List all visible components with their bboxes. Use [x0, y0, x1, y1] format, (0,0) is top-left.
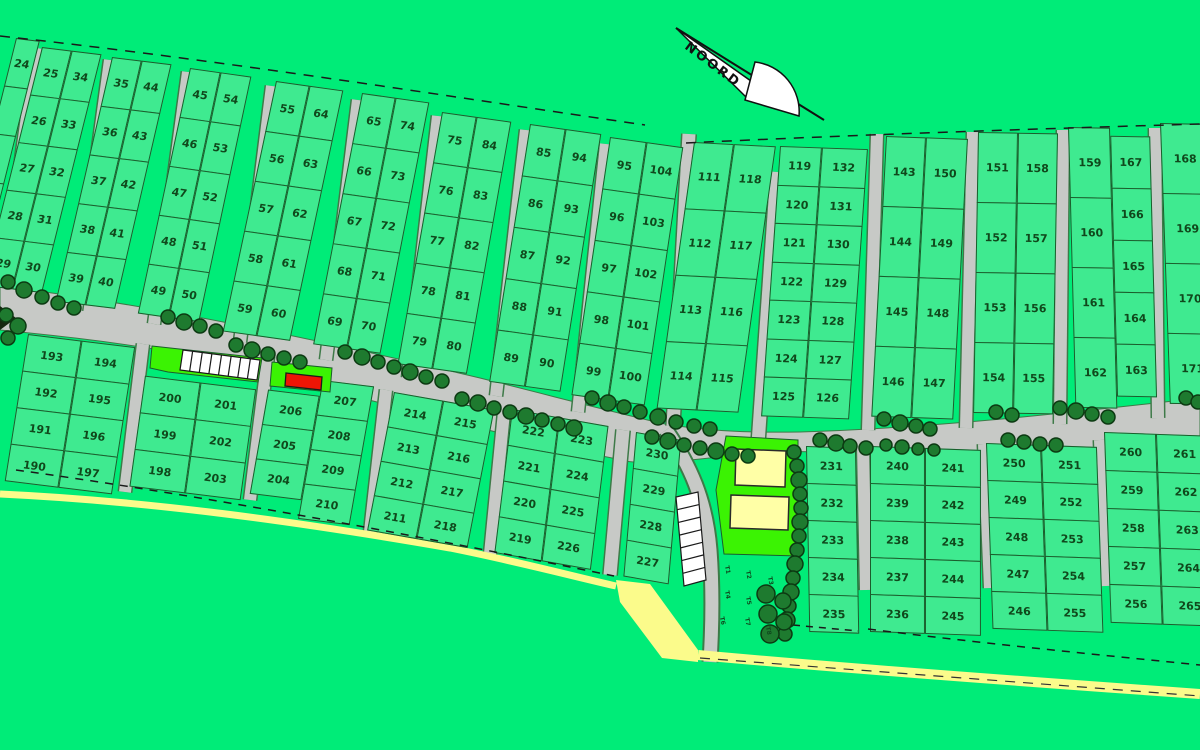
- tree-icon: [892, 415, 908, 431]
- tree-icon: [792, 514, 808, 530]
- tree-icon: [645, 430, 659, 444]
- tree-icon: [791, 472, 807, 488]
- tree-icon: [419, 370, 433, 384]
- tree-icon: [244, 342, 260, 358]
- tree-icon: [67, 301, 81, 315]
- t-label-T7: T7: [743, 617, 751, 626]
- tree-icon: [193, 319, 207, 333]
- t-label-T6: T6: [718, 616, 726, 625]
- tree-icon: [354, 349, 370, 365]
- tree-icon: [1005, 408, 1019, 422]
- tree-icon: [725, 447, 739, 461]
- tree-icon: [229, 338, 243, 352]
- tree-icon: [786, 571, 800, 585]
- tree-icon: [895, 440, 909, 454]
- tree-icon: [487, 401, 501, 415]
- tree-icon: [470, 395, 486, 411]
- tree-icon: [1101, 410, 1115, 424]
- t-label-T4: T4: [723, 590, 731, 599]
- south-road-dash: [700, 658, 1200, 696]
- tree-icon: [633, 405, 647, 419]
- tree-icon: [776, 614, 792, 630]
- tree-icon: [209, 324, 223, 338]
- tree-icon: [660, 433, 676, 449]
- tree-icon: [909, 419, 923, 433]
- tree-icon: [261, 347, 275, 361]
- tree-icon: [669, 415, 683, 429]
- t-label-T2: T2: [744, 570, 752, 579]
- tree-icon: [338, 345, 352, 359]
- tree-icon: [693, 441, 707, 455]
- tree-icon: [503, 405, 517, 419]
- tree-icon: [518, 408, 534, 424]
- tree-icon: [535, 413, 549, 427]
- tree-icon: [387, 360, 401, 374]
- t-label-T5: T5: [744, 596, 752, 605]
- tree-icon: [51, 296, 65, 310]
- tree-icon: [1085, 407, 1099, 421]
- tree-icon: [923, 422, 937, 436]
- south-dash-b: [868, 629, 1200, 665]
- tree-icon: [757, 585, 775, 603]
- tree-icon: [1017, 435, 1031, 449]
- t-label-T3: T3: [766, 576, 774, 585]
- tree-icon: [277, 351, 291, 365]
- building-2: [730, 495, 789, 530]
- overlay-layer: T1T2T3T4T5T6T7T8 NOORD: [0, 0, 1200, 750]
- tree-icon: [293, 355, 307, 369]
- tree-icon: [843, 439, 857, 453]
- tree-icon: [787, 445, 801, 459]
- tree-icon: [790, 459, 804, 473]
- tree-icon: [10, 318, 26, 334]
- tree-icon: [813, 433, 827, 447]
- tree-icon: [794, 501, 808, 515]
- north-arrow-icon: NOORD: [676, 28, 824, 120]
- tree-icon: [787, 556, 803, 572]
- tree-icon: [1001, 433, 1015, 447]
- tree-icon: [371, 355, 385, 369]
- tree-icon: [792, 529, 806, 543]
- tree-icon: [35, 290, 49, 304]
- t-label-T1: T1: [723, 565, 731, 574]
- tree-icon: [790, 543, 804, 557]
- tree-icon: [650, 409, 666, 425]
- tree-icon: [759, 605, 777, 623]
- tree-icon: [1053, 401, 1067, 415]
- tree-icon: [585, 391, 599, 405]
- tree-icon: [828, 435, 844, 451]
- tree-icon: [793, 487, 807, 501]
- tree-icon: [617, 400, 631, 414]
- tree-icon: [402, 364, 418, 380]
- tree-icon: [877, 412, 891, 426]
- tree-icon: [1, 275, 15, 289]
- t-label-T8: T8: [764, 626, 772, 635]
- tree-icon: [677, 438, 691, 452]
- tree-icon: [600, 395, 616, 411]
- tree-icon: [859, 441, 873, 455]
- tree-icon: [775, 593, 791, 609]
- tree-icon: [1049, 438, 1063, 452]
- tree-icon: [16, 282, 32, 298]
- tree-icon: [687, 419, 701, 433]
- beach-boundary-dash: [16, 470, 614, 576]
- tree-icon: [912, 443, 924, 455]
- north-boundary-dash-right: [686, 124, 1200, 143]
- tree-icon: [1068, 403, 1084, 419]
- tree-icon: [741, 449, 755, 463]
- tree-icon: [435, 374, 449, 388]
- tree-icon: [703, 422, 717, 436]
- tree-icon: [566, 420, 582, 436]
- tree-icon: [455, 392, 469, 406]
- tree-icon: [0, 308, 13, 322]
- tree-icon: [928, 444, 940, 456]
- north-boundary-dash-left: [0, 36, 645, 125]
- tree-icon: [161, 310, 175, 324]
- tree-icon: [1, 331, 15, 345]
- tree-icon: [989, 405, 1003, 419]
- tree-icon: [551, 417, 565, 431]
- tree-icon: [1191, 395, 1200, 409]
- tree-icon: [176, 314, 192, 330]
- parcel-map: 2425262728293433323130353637383944434241…: [0, 0, 1200, 750]
- south-dash-a: [793, 625, 858, 631]
- tree-icon: [1033, 437, 1047, 451]
- tree-icon: [708, 443, 724, 459]
- tree-icon: [880, 439, 892, 451]
